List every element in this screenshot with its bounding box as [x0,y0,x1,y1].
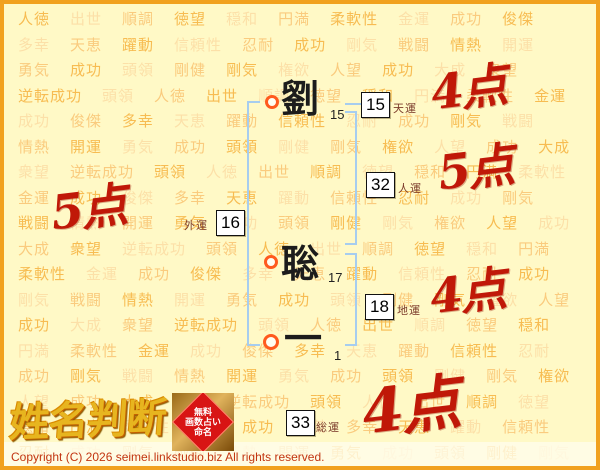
gaiun-score: 5点 [48,182,127,238]
site-logo[interactable]: 姓名判断 [8,385,169,448]
soun-value-box: 33 [286,410,315,436]
badge-line-3: 命名 [185,427,221,437]
given-char-2-circle-icon [263,334,279,350]
badge-text: 無料 画数占い 命名 [185,407,221,437]
gaiun-bracket-tick-top [247,101,260,103]
free-naming-badge[interactable]: 無料 画数占い 命名 [172,393,234,451]
gaiun-bracket-tick-bottom [247,344,260,346]
chiun-score: 4点 [427,266,506,322]
soun-score: 4点 [359,372,461,443]
jinun-bracket-tick-top [345,111,357,113]
chiun-bracket-line [355,253,357,346]
surname-char: 劉 [281,80,319,120]
tenun-score: 4点 [428,62,507,118]
jinun-score: 5点 [435,142,514,198]
gaiun-bracket-line [247,101,249,346]
given-char-1: 聡 [281,245,319,285]
chiun-bracket-tick-top [345,253,357,255]
badge-line-1: 無料 [185,407,221,417]
gaiun-label: 外運 [184,217,208,233]
seimei-handan-page: 人徳出世順調徳望穏和円満柔軟性金運成功俊傑多幸天恵躍動信頼性忍耐成功剛気戦闘情熱… [0,0,600,470]
tenun-value-box: 15 [361,92,390,118]
surname-char-circle-icon [265,95,279,109]
jinun-label: 人運 [398,180,422,196]
surname-char-strokes: 15 [330,107,344,122]
jinun-value-box: 32 [366,172,395,198]
given-char-2: 一 [284,320,322,360]
given-char-2-strokes: 1 [334,348,341,363]
chiun-bracket-tick-bottom [345,344,357,346]
chiun-value-box: 18 [365,294,394,320]
tenun-connector-line [345,103,362,105]
tenun-label: 天運 [393,100,417,116]
copyright-text: Copyright (C) 2026 seimei.linkstudio.biz… [11,450,324,464]
chiun-label: 地運 [397,302,421,318]
given-char-1-circle-icon [264,255,278,269]
soun-label: 総運 [316,419,340,435]
jinun-bracket-line [355,111,357,245]
given-char-1-strokes: 17 [328,270,342,285]
jinun-bracket-tick-bottom [345,243,357,245]
gaiun-value-box: 16 [216,210,245,236]
badge-line-2: 画数占い [185,417,221,427]
